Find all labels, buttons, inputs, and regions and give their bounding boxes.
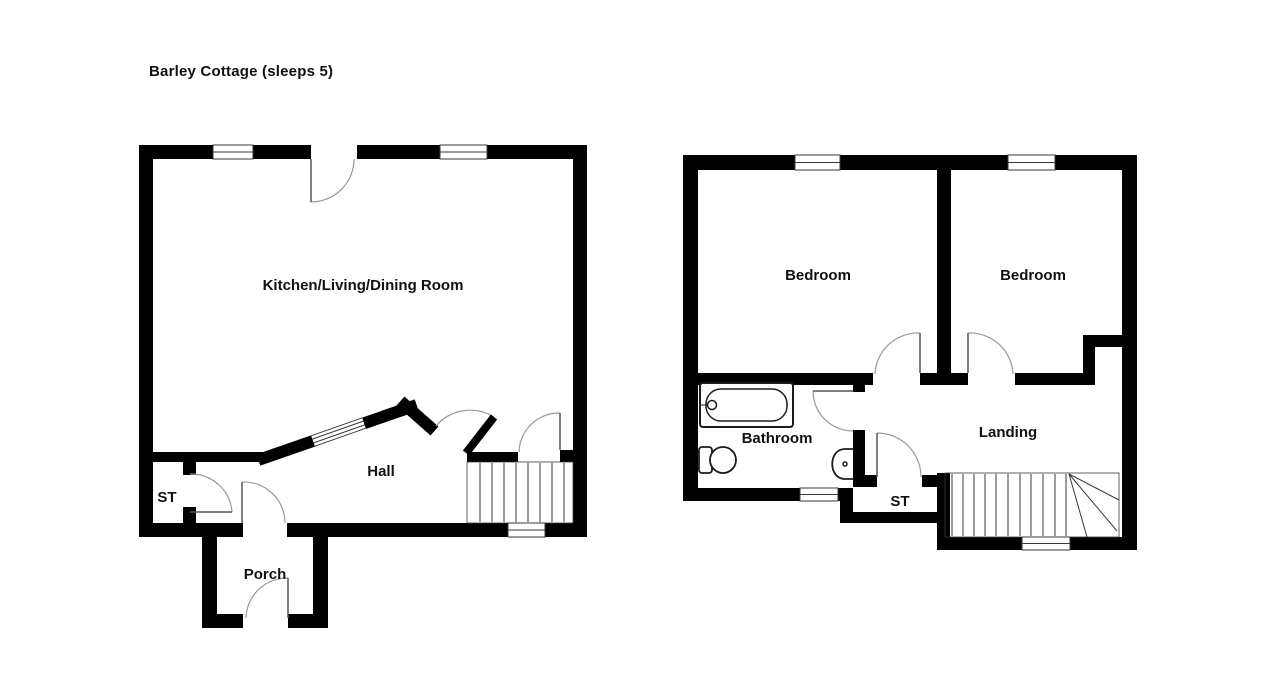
stairs-first (945, 473, 1119, 537)
wall-hall-wall-right (467, 452, 518, 462)
wall-stairs-bottom-b (1070, 537, 1137, 550)
door-kitchen-hall (436, 410, 494, 453)
floorplan-drawing: Kitchen/Living/Dining RoomHallSTPorchBed… (0, 0, 1280, 674)
door-kitchen-hall-leaf (466, 417, 494, 453)
door-st-swing-arc (190, 474, 232, 512)
stairs-ground-outline (467, 462, 573, 523)
door-hall-stairs (519, 413, 560, 452)
wall-st-top-stub-left (853, 475, 877, 487)
toilet-bowl (710, 447, 736, 473)
wall-st-top-stub-right (922, 475, 942, 487)
room-label-porch: Porch (244, 566, 287, 583)
door-st (877, 433, 921, 477)
door-porch-front-swing-arc (246, 578, 288, 618)
window-bathroom (800, 488, 838, 501)
wall-bottom-c (545, 523, 587, 537)
door-bathroom (813, 391, 853, 431)
wall-st-bottom (840, 512, 950, 523)
stairs-ground (467, 462, 573, 523)
door-bedroom-right (968, 333, 1013, 374)
wall-right (1122, 155, 1137, 550)
ground-floor-plan: Kitchen/Living/Dining RoomHallSTPorch (139, 145, 587, 628)
door-hall-stairs-swing-arc (519, 413, 560, 452)
door-kitchen-front (311, 159, 354, 202)
wall-right (573, 145, 587, 537)
door-porch-inner (242, 482, 285, 523)
wall-diagonal-bend (405, 405, 430, 427)
wall-left (683, 155, 698, 501)
wall-bath-bottom-a (683, 488, 800, 501)
room-label-landing: Landing (979, 424, 1037, 441)
stairs-first-winder-1 (1069, 474, 1117, 531)
window-diagonal (311, 418, 366, 446)
wall-hall-wall-left (150, 452, 268, 462)
wall-bottom-a (139, 523, 243, 537)
door-bedroom-left (875, 333, 920, 374)
door-st-swing-arc (877, 433, 921, 477)
wall-top-c (357, 145, 440, 159)
wall-top-a (683, 155, 795, 170)
wall-top-b (840, 155, 1008, 170)
door-porch-inner-swing-arc (242, 482, 285, 523)
stairs-first-winder-0 (1069, 474, 1119, 500)
door-bathroom-swing-arc (813, 391, 853, 431)
ground-walls (139, 145, 587, 628)
window-top-left (795, 155, 840, 170)
door-st (190, 474, 232, 512)
wall-bath-right-a (853, 383, 865, 392)
wall-bottom-b (287, 523, 508, 537)
sink-drain (843, 462, 847, 466)
wall-bedroom-bottom-b (920, 373, 968, 385)
door-porch-front (246, 578, 288, 618)
wall-porch-bottom-b (288, 614, 328, 628)
wall-stairs-bottom-a (937, 537, 1022, 550)
window-top-right (440, 145, 487, 159)
door-bedroom-right-swing-arc (968, 333, 1013, 374)
room-label-bedroom-left: Bedroom (785, 267, 851, 284)
bathtub-drain (708, 401, 717, 410)
stairs-first-winder-2 (1069, 474, 1087, 537)
wall-left (139, 145, 153, 537)
window-top-left (213, 145, 253, 159)
room-label-hall: Hall (367, 463, 395, 480)
room-label-st: ST (890, 493, 909, 510)
window-stairs (1022, 537, 1070, 550)
window-top-right (1008, 155, 1055, 170)
door-kitchen-front-swing-arc (311, 159, 354, 202)
wall-st-stub-bottom (183, 507, 196, 523)
room-label-kitchen-living-dining: Kitchen/Living/Dining Room (263, 277, 464, 294)
wall-top-b (253, 145, 311, 159)
first-floor-plan: BedroomBedroomBathroomLandingST (683, 155, 1137, 550)
room-label-st: ST (157, 489, 176, 506)
wall-porch-bottom-a (202, 614, 243, 628)
ground-doors (190, 159, 560, 618)
bathtub-inner (706, 389, 787, 421)
wall-hall-stub-right (560, 450, 574, 462)
room-label-bedroom-right: Bedroom (1000, 267, 1066, 284)
window-bottom-stairs (508, 523, 545, 537)
wall-st-stub-top (183, 462, 196, 475)
room-label-bathroom: Bathroom (742, 430, 813, 447)
first-windows (795, 155, 1070, 550)
wall-notch-horizontal (1083, 335, 1122, 347)
wall-bedroom-divider (937, 170, 951, 374)
floorplan-page: Barley Cottage (sleeps 5) Kitchen/Living… (0, 0, 1280, 674)
stairs-first-outline (945, 473, 1119, 537)
wall-top-d (487, 145, 587, 159)
first-walls (683, 155, 1137, 550)
plan-title: Barley Cottage (sleeps 5) (149, 63, 333, 80)
door-bedroom-left-swing-arc (875, 333, 920, 374)
